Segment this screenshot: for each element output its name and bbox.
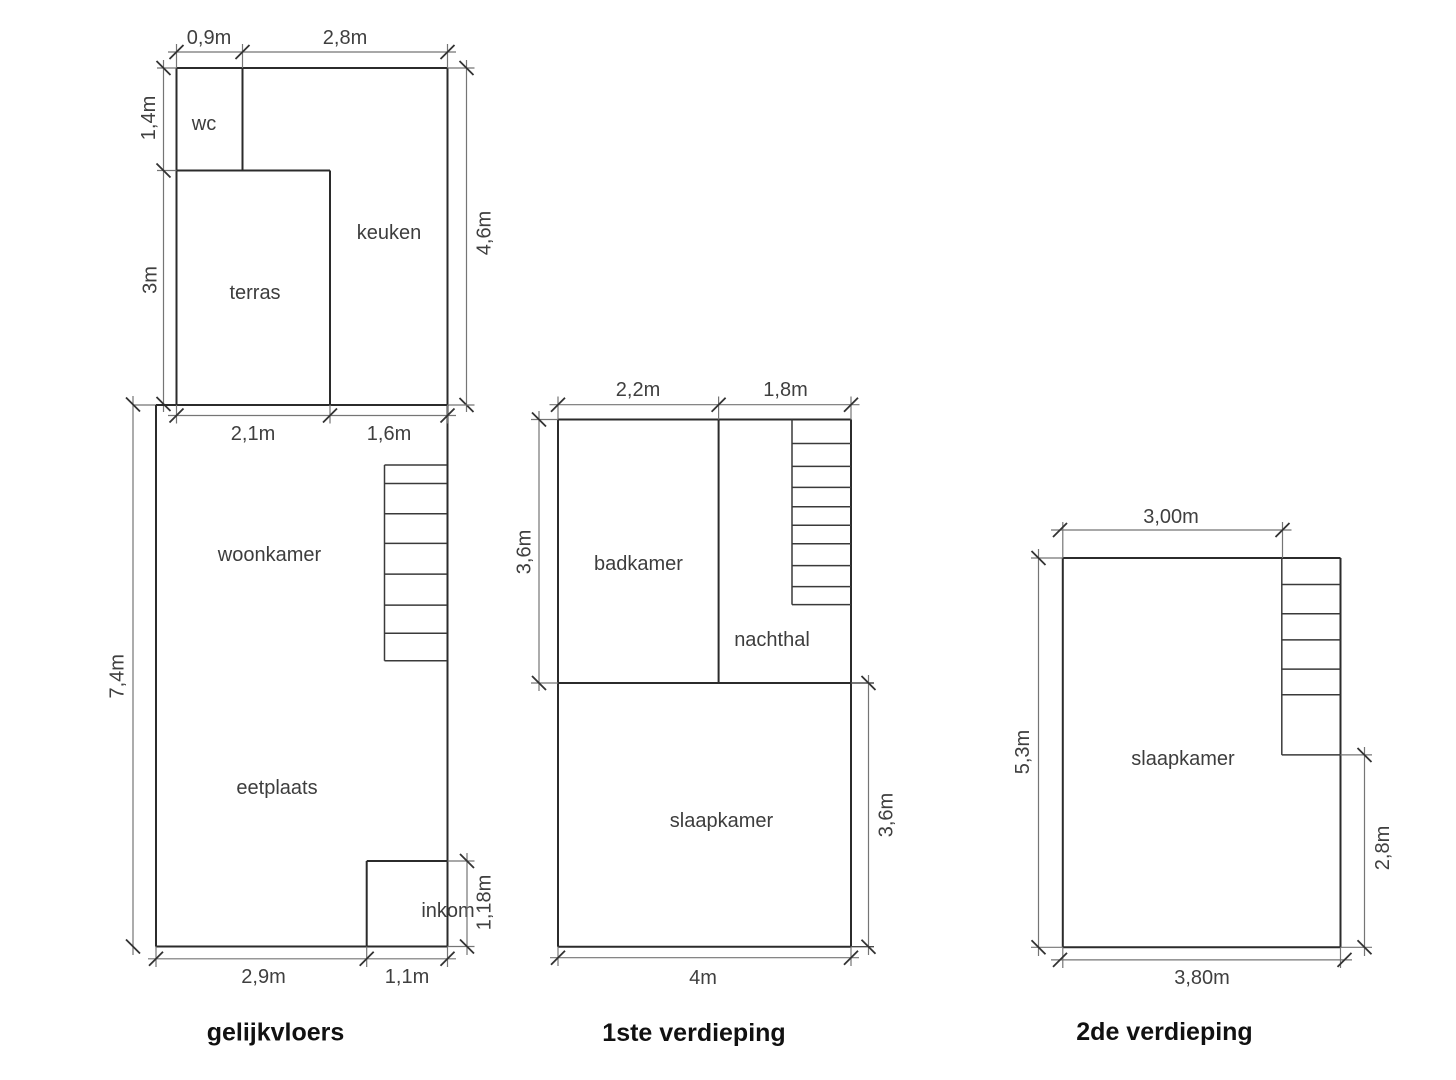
svg-text:1,8m: 1,8m [763,379,807,401]
svg-text:1ste verdieping: 1ste verdieping [602,1019,785,1047]
svg-text:keuken: keuken [357,222,422,244]
svg-text:2,2m: 2,2m [616,379,660,401]
svg-text:5,3m: 5,3m [1012,730,1034,774]
svg-text:7,4m: 7,4m [107,654,129,698]
svg-text:3,80m: 3,80m [1174,967,1230,989]
svg-text:4,6m: 4,6m [474,211,496,255]
svg-text:2,8m: 2,8m [323,27,367,49]
svg-text:2,1m: 2,1m [231,423,275,445]
svg-text:1,1m: 1,1m [385,966,429,988]
svg-text:2,9m: 2,9m [241,966,285,988]
svg-text:3,6m: 3,6m [513,530,535,574]
svg-text:slaapkamer: slaapkamer [1131,748,1235,770]
svg-text:gelijkvloers: gelijkvloers [207,1019,345,1047]
svg-text:0,9m: 0,9m [187,27,231,49]
svg-text:badkamer: badkamer [594,553,683,575]
svg-text:slaapkamer: slaapkamer [670,810,774,832]
svg-text:eetplaats: eetplaats [236,777,317,799]
svg-text:3m: 3m [140,266,162,294]
svg-text:1,6m: 1,6m [367,423,411,445]
svg-text:2,8m: 2,8m [1372,826,1394,870]
svg-text:1,18m: 1,18m [474,875,496,931]
svg-text:woonkamer: woonkamer [217,544,322,566]
svg-text:nachthal: nachthal [734,629,810,651]
svg-text:3,00m: 3,00m [1143,506,1199,528]
svg-text:terras: terras [229,282,280,304]
svg-text:wc: wc [191,113,216,135]
svg-text:2de verdieping: 2de verdieping [1076,1018,1252,1046]
svg-text:1,4m: 1,4m [138,96,160,140]
svg-text:4m: 4m [689,967,717,989]
svg-text:3,6m: 3,6m [876,793,898,837]
